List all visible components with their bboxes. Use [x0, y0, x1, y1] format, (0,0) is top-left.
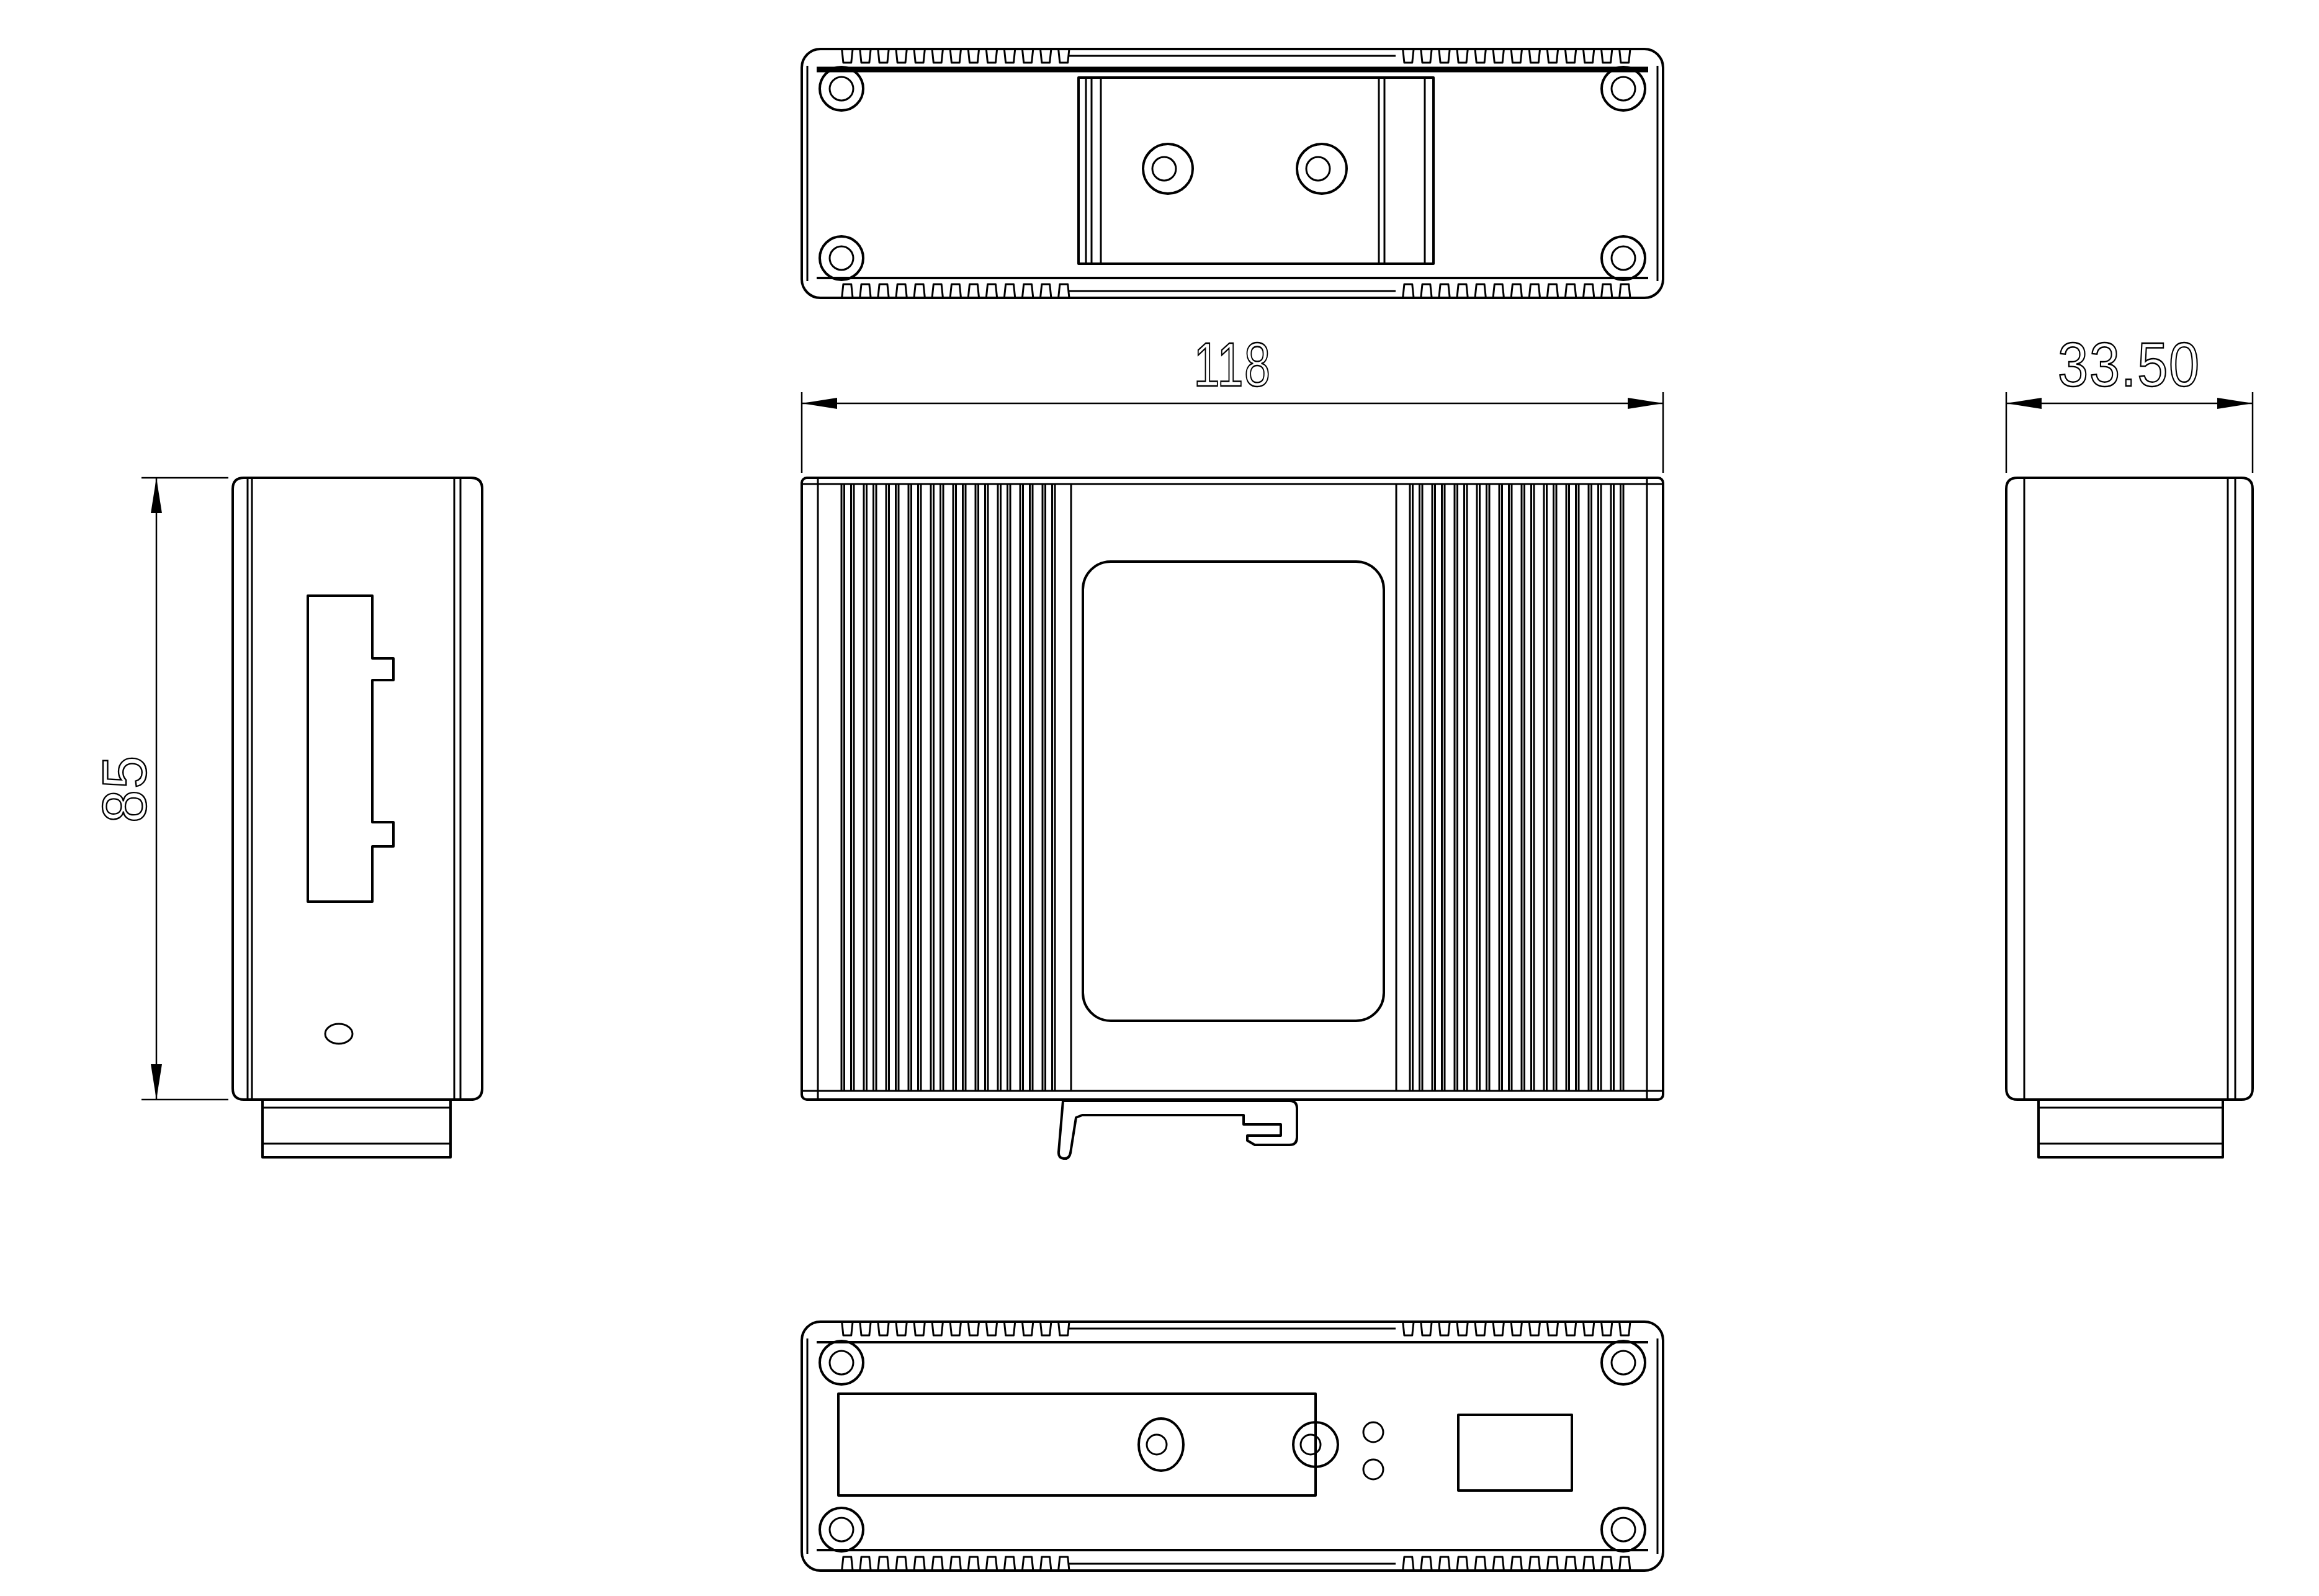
corner-screw-boss: [820, 1508, 863, 1551]
screw-boss: [1139, 1419, 1183, 1471]
arrowhead-icon: [151, 1064, 162, 1100]
led-hole: [1363, 1422, 1383, 1442]
side-hole: [325, 1024, 352, 1044]
arrowhead-icon: [802, 398, 837, 409]
dimension-text-side-depth: 33.50: [2058, 330, 2200, 399]
top-view: [802, 49, 1663, 298]
drawing-page: 118 33.50 85: [0, 0, 2319, 1596]
serrated-edge: [1396, 284, 1630, 298]
top-view-corner-screws: [820, 67, 1645, 280]
serrated-edge: [835, 1557, 1069, 1571]
corner-screw: [830, 246, 853, 270]
corner-screw: [1612, 1351, 1635, 1374]
corner-screw: [830, 1518, 853, 1541]
corner-screw-boss: [1602, 67, 1645, 110]
label-recess: [1083, 562, 1384, 1021]
right-side-view: [2006, 478, 2253, 1157]
left-view-outline: [233, 478, 482, 1100]
io-panel-cutout: [838, 1394, 1316, 1495]
bottom-view-outline: [802, 1322, 1663, 1571]
corner-screw-boss: [1602, 1341, 1645, 1384]
serrated-edge: [1396, 1557, 1630, 1571]
left-side-view: [233, 478, 482, 1157]
arrowhead-icon: [2006, 398, 2042, 409]
arrowhead-icon: [151, 478, 162, 513]
serrated-edge: [835, 49, 1069, 63]
corner-screw-boss: [820, 236, 863, 280]
mount-hole: [1152, 157, 1176, 181]
mount-hole-boss: [1143, 144, 1193, 194]
led-hole: [1363, 1459, 1383, 1479]
screw-hole: [1301, 1435, 1321, 1455]
corner-screw-boss: [820, 67, 863, 110]
corner-screw-boss: [1602, 1508, 1645, 1551]
connector-cutout: [1458, 1415, 1572, 1491]
corner-screw-boss: [820, 1341, 863, 1384]
din-rail-clip: [1059, 1101, 1297, 1159]
corner-screw-boss: [1602, 236, 1645, 280]
arrowhead-icon: [1628, 398, 1663, 409]
din-mount-block-lines: [1086, 78, 1425, 264]
corner-screw: [1612, 1518, 1635, 1541]
terminal-cutout: [308, 596, 393, 902]
screw-hole: [1147, 1435, 1167, 1455]
corner-screw: [830, 1351, 853, 1374]
dimension-front-width: 118: [802, 330, 1663, 473]
serrated-edge: [835, 1322, 1069, 1335]
mount-hole: [1306, 157, 1330, 181]
serrated-edge: [1396, 49, 1630, 63]
serrated-edge: [1396, 1322, 1630, 1335]
serrated-edge: [835, 284, 1069, 298]
front-view: [802, 478, 1663, 1159]
corner-screw: [830, 77, 853, 101]
din-mount-block: [1079, 78, 1433, 264]
bottom-view-corner-screws: [820, 1341, 1645, 1551]
arrowhead-icon: [2217, 398, 2253, 409]
heatsink-fins-left: [841, 484, 1055, 1091]
corner-screw: [1612, 246, 1635, 270]
dimension-text-front-width: 118: [1194, 330, 1272, 399]
dimension-side-depth: 33.50: [2006, 330, 2253, 473]
dimension-body-height: 85: [89, 478, 228, 1100]
top-view-serrations: [835, 49, 1630, 298]
corner-screw: [1612, 77, 1635, 101]
bottom-view: [802, 1322, 1663, 1571]
dimension-text-body-height: 85: [89, 755, 159, 823]
top-view-outline: [802, 49, 1663, 298]
heatsink-fins-right: [1410, 484, 1623, 1091]
right-view-outline: [2006, 478, 2253, 1100]
mount-hole-boss: [1297, 144, 1347, 194]
technical-drawing: 118 33.50 85: [0, 0, 2319, 1596]
bottom-view-serrations: [835, 1322, 1630, 1571]
